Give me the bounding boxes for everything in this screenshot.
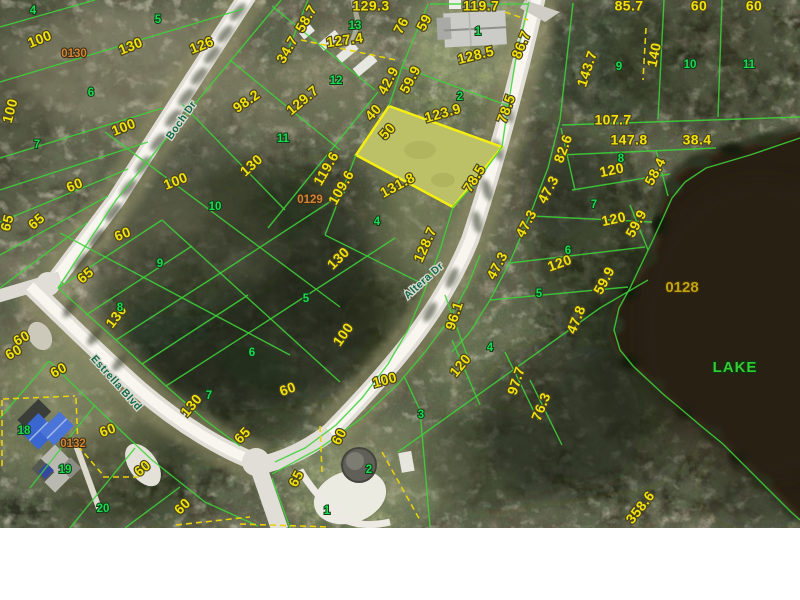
svg-text:6: 6 bbox=[88, 87, 94, 99]
svg-text:119.7: 119.7 bbox=[463, 0, 499, 14]
svg-text:6: 6 bbox=[565, 245, 571, 257]
svg-text:0129: 0129 bbox=[297, 194, 323, 206]
svg-text:8: 8 bbox=[117, 302, 124, 314]
svg-text:107.7: 107.7 bbox=[594, 112, 631, 128]
svg-text:19: 19 bbox=[59, 464, 72, 476]
svg-text:85.7: 85.7 bbox=[615, 0, 644, 14]
svg-text:LAKE: LAKE bbox=[713, 359, 758, 376]
svg-text:2: 2 bbox=[366, 464, 372, 476]
svg-text:7: 7 bbox=[206, 390, 212, 402]
svg-text:5: 5 bbox=[536, 288, 543, 300]
svg-text:38.4: 38.4 bbox=[683, 132, 712, 148]
svg-text:5: 5 bbox=[303, 293, 310, 305]
svg-text:9: 9 bbox=[157, 258, 163, 270]
svg-text:10: 10 bbox=[209, 201, 222, 213]
svg-text:12: 12 bbox=[330, 75, 343, 87]
svg-text:0130: 0130 bbox=[61, 48, 87, 60]
svg-text:60: 60 bbox=[691, 0, 707, 14]
svg-text:10: 10 bbox=[684, 59, 697, 71]
svg-text:4: 4 bbox=[30, 5, 37, 17]
svg-text:7: 7 bbox=[34, 139, 40, 151]
svg-text:13: 13 bbox=[349, 20, 362, 32]
svg-text:2: 2 bbox=[457, 91, 463, 103]
svg-text:7: 7 bbox=[591, 199, 597, 211]
svg-text:1: 1 bbox=[475, 26, 482, 38]
svg-text:4: 4 bbox=[487, 342, 494, 354]
svg-text:11: 11 bbox=[743, 59, 756, 71]
svg-text:20: 20 bbox=[97, 503, 110, 515]
svg-text:147.8: 147.8 bbox=[610, 132, 647, 148]
svg-text:0132: 0132 bbox=[60, 438, 86, 450]
svg-text:129.3: 129.3 bbox=[352, 0, 389, 14]
svg-text:9: 9 bbox=[616, 61, 622, 73]
svg-text:18: 18 bbox=[18, 425, 31, 437]
svg-text:0128: 0128 bbox=[665, 279, 698, 296]
svg-text:11: 11 bbox=[277, 133, 290, 145]
svg-text:5: 5 bbox=[155, 14, 162, 26]
svg-text:4: 4 bbox=[374, 216, 381, 228]
svg-text:8: 8 bbox=[618, 153, 625, 165]
svg-text:6: 6 bbox=[249, 347, 255, 359]
svg-text:3: 3 bbox=[418, 409, 424, 421]
svg-text:60: 60 bbox=[746, 0, 762, 14]
svg-text:1: 1 bbox=[324, 505, 331, 517]
